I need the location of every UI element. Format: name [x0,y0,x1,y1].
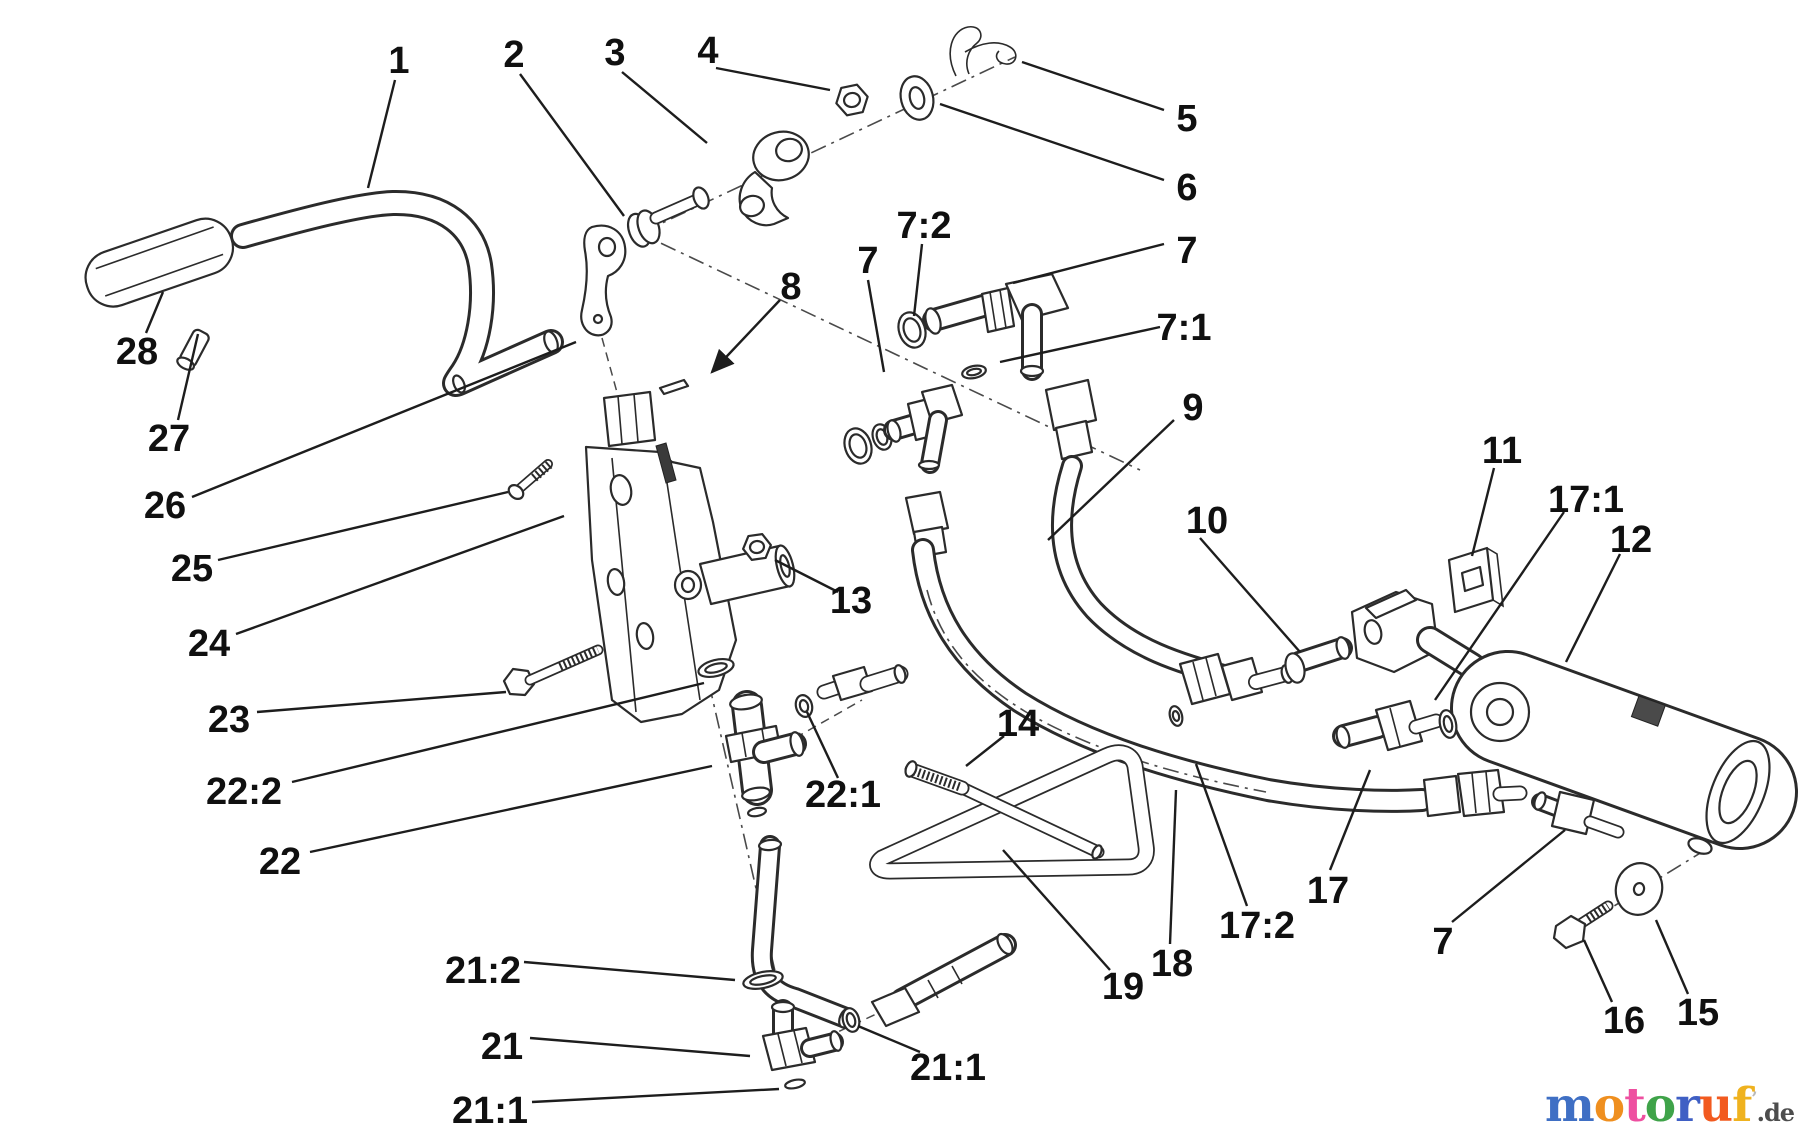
part-washer-15 [1610,858,1667,920]
part-oring-22-1 [793,693,814,718]
part-label-10: 10 [1186,500,1228,542]
part-tee-fitting [726,692,806,817]
leader-line-28 [146,292,163,333]
part-label-21: 21 [481,1026,523,1068]
leader-line-22 [310,766,712,852]
part-label-24: 24 [188,623,230,665]
part-label-26: 26 [144,485,186,527]
watermark-letter: f [1732,1078,1751,1133]
watermark-letter: r [1675,1078,1699,1133]
leader-line-15 [1656,920,1688,994]
part-hex-bolt-16 [1554,906,1608,948]
part-label-12: 12 [1610,519,1652,561]
part-label-18: 18 [1151,943,1193,985]
part-label-27: 27 [148,418,190,460]
leader-line-21-2 [524,962,735,980]
part-detent-pin [660,380,688,394]
part-label-7-top: 7 [1176,230,1197,272]
part-label-25: 25 [171,548,213,590]
part-label-19: 19 [1102,966,1144,1008]
part-label-21-2: 21:2 [445,950,521,992]
part-retainer-clip [1449,548,1503,612]
leader-line-5 [1022,62,1164,110]
part-label-5: 5 [1176,98,1197,140]
part-label-28: 28 [116,331,158,373]
part-l-tube [759,839,856,1030]
part-label-11: 11 [1482,430,1522,472]
part-hose9-end-fitting [1180,654,1294,704]
part-clamp-assembly [738,126,814,226]
leader-line-6 [940,104,1164,180]
part-set-screw [506,464,550,502]
part-label-4: 4 [697,30,718,72]
leader-line-10 [1200,538,1300,652]
leader-line-11 [1472,468,1494,556]
part-connector-fitting [824,664,907,700]
watermark-letter: t [1624,1078,1645,1133]
part-label-8: 8 [780,266,801,308]
part-label-23: 23 [208,699,250,741]
watermark-letter: u [1699,1078,1732,1133]
leader-line-8 [712,300,780,372]
leader-line-25 [218,492,508,560]
part-fitting-17 [1335,701,1436,750]
watermark-letter: m [1545,1078,1594,1133]
part-cotter-pin [950,27,1016,76]
leader-line-23 [257,692,506,712]
part-elbow-fitting-upper [894,274,1068,376]
part-label-21-1b: 21:1 [910,1047,986,1089]
part-label-1: 1 [388,40,409,82]
leader-line-7-mid [868,280,884,372]
part-label-17-2: 17:2 [1219,905,1295,947]
leader-line-1 [368,80,395,188]
part-label-7-2: 7:2 [897,205,952,247]
leader-line-17 [1330,770,1370,870]
part-label-15: 15 [1677,992,1719,1034]
part-label-9: 9 [1182,387,1203,429]
part-lift-cylinder [1471,683,1782,857]
part-label-17-1: 17:1 [1548,479,1624,521]
part-label-21-1a: 21:1 [452,1090,528,1132]
parts-diagram-svg: 12345677:277:189101117:112132625242322:2… [0,0,1800,1133]
diagram-canvas: 12345677:277:189101117:112132625242322:2… [0,0,1800,1133]
part-pivot-bracket [581,226,625,336]
watermark-logo: motoruf’.de [1545,1082,1794,1129]
part-label-14: 14 [997,703,1039,745]
watermark-letter: o [1594,1078,1624,1133]
part-label-6: 6 [1176,167,1197,209]
leader-line-12 [1566,554,1620,662]
leader-line-21 [530,1038,750,1056]
part-label-16: 16 [1603,1000,1645,1042]
part-hex-bolt-23 [504,650,598,695]
part-oring-7-1 [961,364,987,381]
part-label-3: 3 [604,32,625,74]
part-label-7-mid: 7 [857,240,878,282]
part-label-22-1: 22:1 [805,774,881,816]
part-label-7-1: 7:1 [1157,307,1212,349]
part-label-7-bot: 7 [1432,921,1453,963]
watermark-letter: o [1645,1078,1675,1133]
part-pivot-bolt [624,185,712,249]
part-label-22: 22 [259,841,301,883]
part-label-13: 13 [830,580,872,622]
leader-line-4 [716,68,830,90]
leader-line-21-1a [532,1089,779,1102]
leader-line-7-bot [1452,830,1565,922]
part-pipe-segment [872,931,1016,1026]
part-label-17: 17 [1307,870,1349,912]
part-elbow-fitting-left [840,385,962,469]
part-hose18-end-fitting [1424,770,1520,816]
part-label-22-2: 22:2 [206,771,282,813]
leader-line-7-2 [914,244,922,316]
part-label-2: 2 [503,34,524,76]
leader-line-18 [1170,790,1176,944]
leader-line-2 [520,74,624,216]
leader-line-26 [192,342,576,497]
leader-line-24 [236,516,564,634]
part-oring-17-2 [1168,705,1185,727]
part-washer [896,73,938,123]
part-grip-pin [175,328,210,373]
leader-line-3 [622,72,707,143]
leader-line-16 [1584,940,1612,1002]
leader-line-7-top [1013,244,1164,283]
part-lift-lever [243,203,560,394]
watermark-suffix: .de [1757,1098,1794,1127]
leader-line-22-2 [292,683,704,782]
part-lock-nut [833,83,870,117]
